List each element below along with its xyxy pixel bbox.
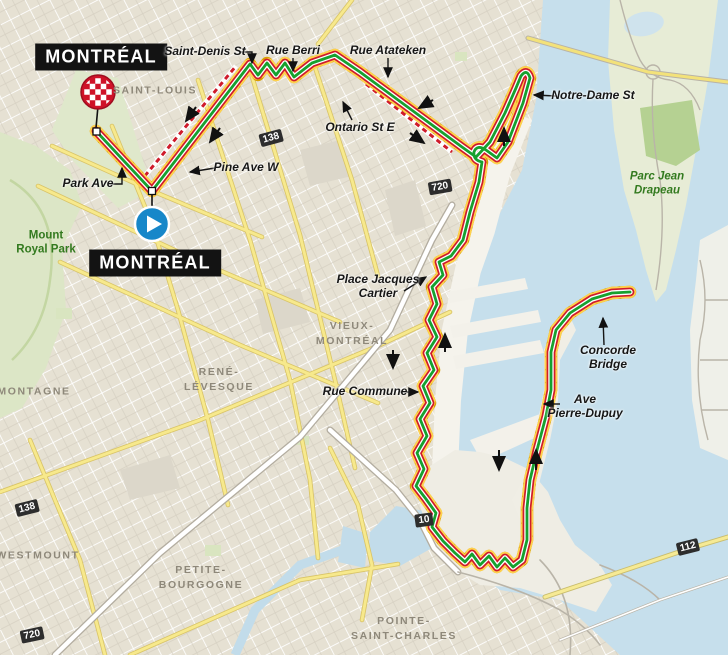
start-line-marker xyxy=(149,188,156,195)
finish-line-marker xyxy=(93,128,100,135)
play-icon xyxy=(135,207,169,241)
checkered-finish-icon xyxy=(81,75,115,109)
map-canvas xyxy=(0,0,728,655)
route-map: MONTRÉAL MONTRÉAL SAINT-LOUISVIEUX-MONTR… xyxy=(0,0,728,655)
